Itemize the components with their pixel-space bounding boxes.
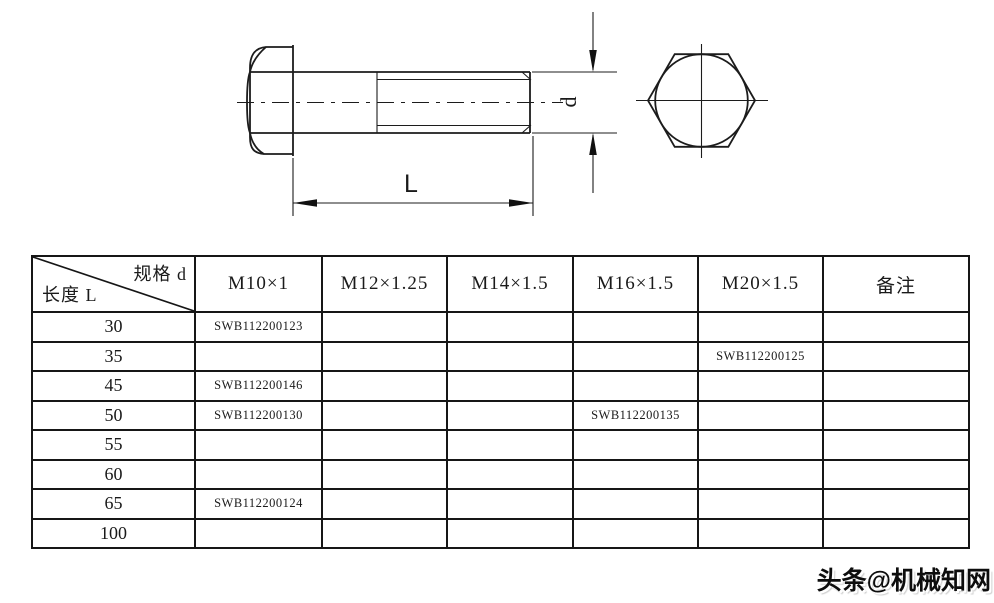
- part-code-cell: [447, 371, 573, 401]
- length-cell: 35: [32, 342, 195, 372]
- corner-header-cell: 规格 d 长度 L: [32, 256, 195, 312]
- part-code-cell: [322, 371, 447, 401]
- table-row: 50 SWB112200130 SWB112200135: [32, 401, 969, 431]
- column-header-m10: M10×1: [195, 256, 322, 312]
- part-code-cell: [698, 430, 823, 460]
- remarks-cell: [823, 519, 969, 549]
- table-row: 100: [32, 519, 969, 549]
- part-code-cell: [447, 430, 573, 460]
- part-code-cell: [573, 312, 698, 342]
- part-code-cell: [698, 401, 823, 431]
- part-code-cell: [195, 460, 322, 490]
- remarks-cell: [823, 489, 969, 519]
- part-code-cell: SWB112200130: [195, 401, 322, 431]
- part-code-cell: [322, 401, 447, 431]
- part-code-cell: [573, 519, 698, 549]
- part-code-cell: [698, 489, 823, 519]
- remarks-cell: [823, 430, 969, 460]
- part-code-cell: [573, 371, 698, 401]
- spec-table: 规格 d 长度 L M10×1 M12×1.25 M14×1.5 M16×1.5…: [31, 255, 970, 549]
- part-code-cell: [573, 430, 698, 460]
- part-code-cell: [322, 489, 447, 519]
- part-code-cell: [447, 489, 573, 519]
- part-code-cell: [447, 519, 573, 549]
- part-code-cell: SWB112200123: [195, 312, 322, 342]
- part-code-cell: [447, 460, 573, 490]
- part-code-cell: [322, 312, 447, 342]
- table-row: 55: [32, 430, 969, 460]
- remarks-cell: [823, 460, 969, 490]
- part-code-cell: [447, 342, 573, 372]
- bolt-technical-drawing: d L: [0, 0, 994, 252]
- part-code-cell: [195, 342, 322, 372]
- length-cell: 65: [32, 489, 195, 519]
- column-header-m14: M14×1.5: [447, 256, 573, 312]
- column-header-m12: M12×1.25: [322, 256, 447, 312]
- part-code-cell: [322, 430, 447, 460]
- header-row: 规格 d 长度 L M10×1 M12×1.25 M14×1.5 M16×1.5…: [32, 256, 969, 312]
- part-code-cell: [195, 519, 322, 549]
- part-code-cell: [698, 460, 823, 490]
- part-code-cell: SWB112200124: [195, 489, 322, 519]
- column-header-m20: M20×1.5: [698, 256, 823, 312]
- part-code-cell: [573, 489, 698, 519]
- column-header-remarks: 备注: [823, 256, 969, 312]
- remarks-cell: [823, 342, 969, 372]
- part-code-cell: SWB112200125: [698, 342, 823, 372]
- remarks-cell: [823, 312, 969, 342]
- length-cell: 50: [32, 401, 195, 431]
- hex-head-end-view: [636, 44, 768, 158]
- length-cell: 60: [32, 460, 195, 490]
- part-code-cell: [698, 371, 823, 401]
- part-code-cell: [573, 460, 698, 490]
- part-code-cell: [698, 519, 823, 549]
- table-row: 60: [32, 460, 969, 490]
- part-code-cell: SWB112200146: [195, 371, 322, 401]
- length-cell: 55: [32, 430, 195, 460]
- length-cell: 45: [32, 371, 195, 401]
- part-code-cell: SWB112200135: [573, 401, 698, 431]
- table-row: 65 SWB112200124: [32, 489, 969, 519]
- corner-spec-label: 规格 d: [134, 260, 188, 286]
- length-cell: 30: [32, 312, 195, 342]
- length-cell: 100: [32, 519, 195, 549]
- bolt-spec-sheet: d L: [0, 0, 994, 603]
- remarks-cell: [823, 401, 969, 431]
- table-row: 30 SWB112200123: [32, 312, 969, 342]
- part-code-cell: [322, 460, 447, 490]
- part-code-cell: [322, 342, 447, 372]
- part-code-cell: [447, 312, 573, 342]
- watermark-text: 头条@机械知网: [817, 561, 991, 597]
- table-row: 35 SWB112200125: [32, 342, 969, 372]
- part-code-cell: [322, 519, 447, 549]
- column-header-m16: M16×1.5: [573, 256, 698, 312]
- table-row: 45 SWB112200146: [32, 371, 969, 401]
- corner-length-label: 长度 L: [42, 281, 98, 307]
- dim-d-label: d: [556, 97, 581, 108]
- bolt-head-side-view: [247, 45, 293, 156]
- dimension-L: L: [293, 136, 533, 216]
- part-code-cell: [573, 342, 698, 372]
- dim-L-label: L: [404, 170, 418, 198]
- part-code-cell: [698, 312, 823, 342]
- part-code-cell: [447, 401, 573, 431]
- part-code-cell: [195, 430, 322, 460]
- remarks-cell: [823, 371, 969, 401]
